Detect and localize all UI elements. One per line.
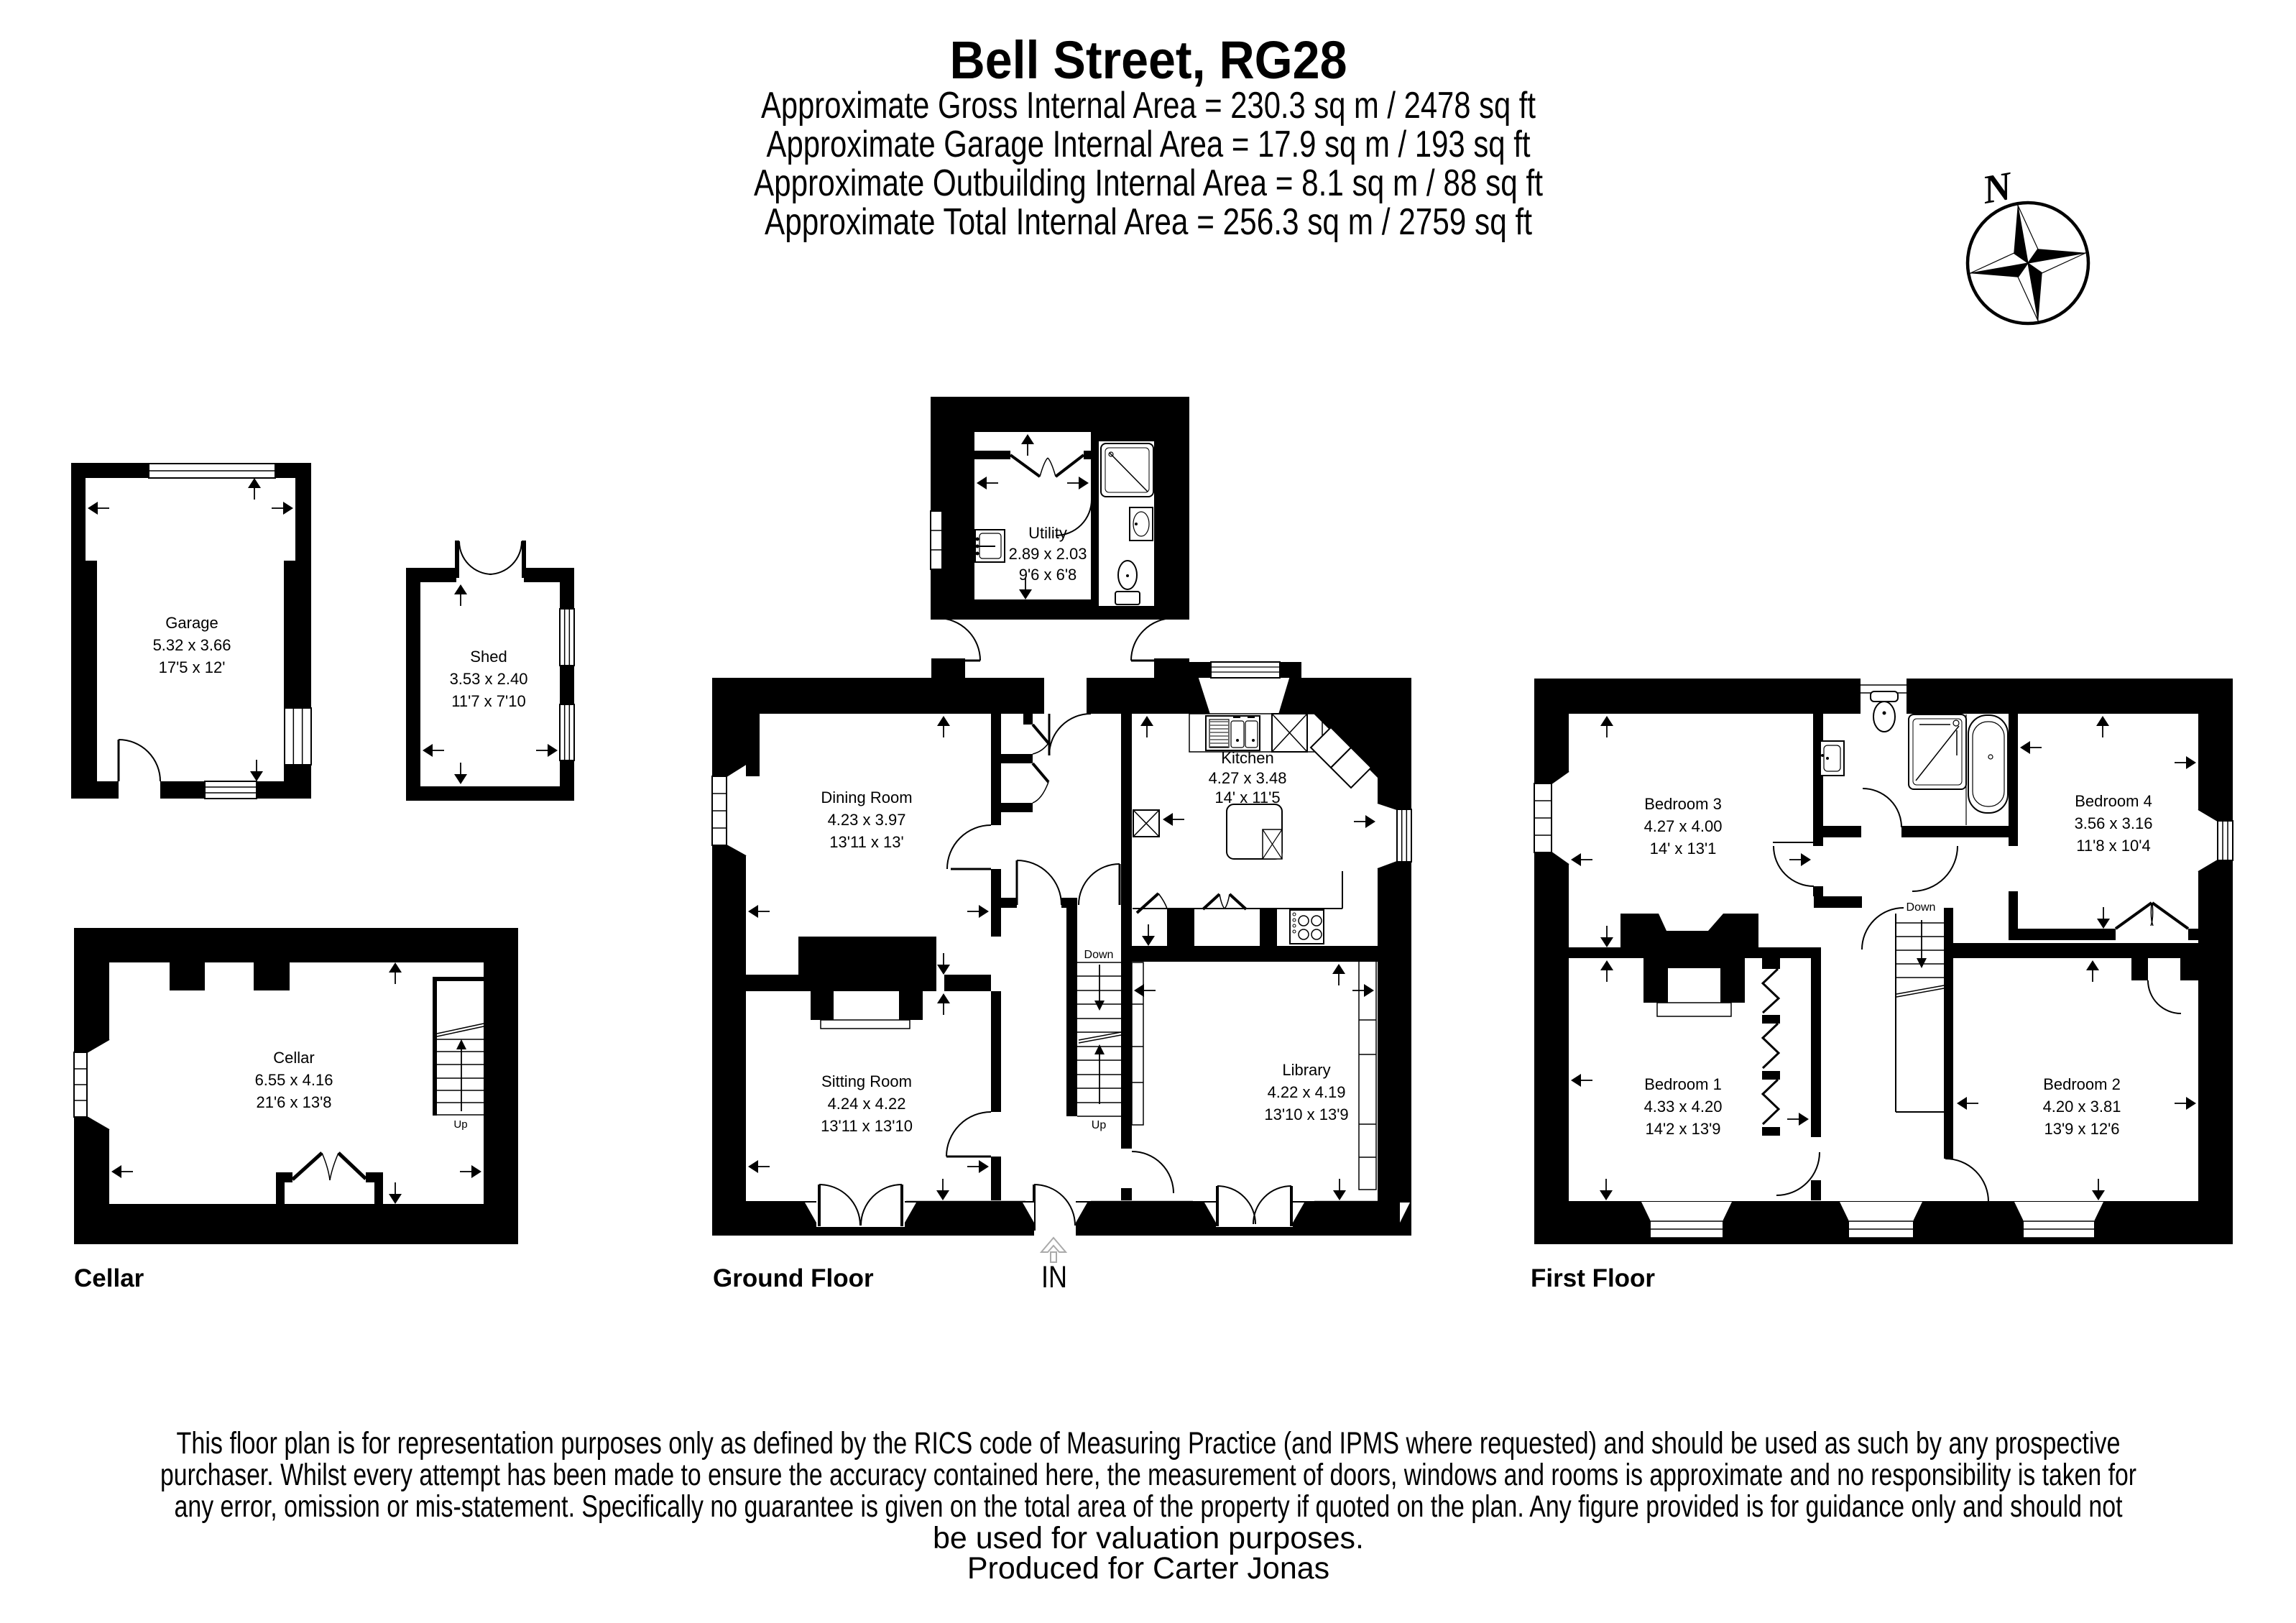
svg-text:Bedroom 4: Bedroom 4 [2075, 792, 2152, 810]
svg-text:any error, omission or mis-sta: any error, omission or mis-statement. Sp… [175, 1489, 2123, 1524]
svg-text:IN: IN [1041, 1260, 1067, 1295]
svg-text:Approximate Gross Internal Are: Approximate Gross Internal Area = 230.3 … [761, 85, 1536, 127]
svg-text:Bedroom 3: Bedroom 3 [1644, 795, 1722, 813]
svg-text:4.24 x 4.22: 4.24 x 4.22 [828, 1095, 906, 1113]
svg-text:Bedroom 1: Bedroom 1 [1644, 1075, 1722, 1093]
svg-text:Produced for Carter Jonas: Produced for Carter Jonas [967, 1551, 1329, 1586]
svg-text:Bedroom 2: Bedroom 2 [2043, 1075, 2121, 1093]
svg-text:First Floor: First Floor [1531, 1264, 1655, 1292]
svg-text:purchaser. Whilst every attemp: purchaser. Whilst every attempt has been… [160, 1458, 2136, 1492]
svg-text:Cellar: Cellar [74, 1264, 144, 1292]
svg-text:4.23 x 3.97: 4.23 x 3.97 [828, 811, 906, 829]
svg-text:13'11 x 13'10: 13'11 x 13'10 [821, 1117, 913, 1135]
svg-text:13'9 x 12'6: 13'9 x 12'6 [2044, 1120, 2119, 1138]
svg-text:11'7 x 7'10: 11'7 x 7'10 [451, 692, 525, 710]
svg-text:Ground Floor: Ground Floor [713, 1264, 874, 1292]
svg-text:14' x 11'5: 14' x 11'5 [1214, 788, 1280, 806]
svg-text:4.22 x 4.19: 4.22 x 4.19 [1268, 1083, 1346, 1101]
svg-text:4.20 x 3.81: 4.20 x 3.81 [2043, 1098, 2121, 1116]
svg-text:17'5 x 12': 17'5 x 12' [159, 658, 226, 676]
svg-text:21'6 x 13'8: 21'6 x 13'8 [256, 1093, 331, 1111]
svg-text:Garage: Garage [165, 614, 218, 632]
svg-text:5.32 x 3.66: 5.32 x 3.66 [153, 636, 231, 654]
svg-text:Utility: Utility [1028, 524, 1067, 542]
svg-text:2.89 x 2.03: 2.89 x 2.03 [1009, 545, 1087, 563]
svg-text:14' x 13'1: 14' x 13'1 [1650, 840, 1717, 858]
svg-text:Up: Up [1092, 1119, 1107, 1131]
svg-text:Dining Room: Dining Room [821, 788, 912, 806]
svg-text:3.53 x 2.40: 3.53 x 2.40 [450, 670, 528, 688]
svg-text:Approximate Garage Internal Ar: Approximate Garage Internal Area = 17.9 … [767, 124, 1531, 165]
svg-text:6.55 x 4.16: 6.55 x 4.16 [255, 1071, 333, 1089]
svg-text:Down: Down [1907, 901, 1936, 914]
svg-text:Bell Street, RG28: Bell Street, RG28 [950, 30, 1347, 90]
svg-text:3.56 x 3.16: 3.56 x 3.16 [2075, 814, 2153, 832]
svg-text:Sitting Room: Sitting Room [821, 1072, 912, 1090]
svg-text:13'10 x 13'9: 13'10 x 13'9 [1264, 1105, 1348, 1123]
svg-text:Approximate Total Internal Are: Approximate Total Internal Area = 256.3 … [765, 201, 1532, 243]
svg-text:11'8 x 10'4: 11'8 x 10'4 [2076, 837, 2150, 855]
svg-text:14'2 x 13'9: 14'2 x 13'9 [1645, 1120, 1720, 1138]
svg-text:13'11 x 13': 13'11 x 13' [829, 833, 903, 851]
svg-text:Kitchen: Kitchen [1221, 749, 1273, 767]
svg-text:4.27 x 3.48: 4.27 x 3.48 [1209, 769, 1287, 787]
svg-text:4.27 x 4.00: 4.27 x 4.00 [1644, 817, 1723, 835]
svg-text:Library: Library [1282, 1061, 1330, 1079]
svg-text:9'6 x 6'8: 9'6 x 6'8 [1019, 566, 1077, 584]
svg-text:Down: Down [1084, 949, 1114, 961]
svg-text:4.33 x 4.20: 4.33 x 4.20 [1644, 1098, 1723, 1116]
svg-text:Shed: Shed [470, 648, 507, 666]
svg-text:Up: Up [453, 1118, 467, 1131]
svg-text:Approximate Outbuilding Intern: Approximate Outbuilding Internal Area = … [754, 162, 1543, 204]
svg-text:Cellar: Cellar [273, 1049, 314, 1067]
svg-text:be used for valuation purposes: be used for valuation purposes. [933, 1521, 1364, 1555]
svg-text:This floor plan is for represe: This floor plan is for representation pu… [177, 1426, 2121, 1461]
